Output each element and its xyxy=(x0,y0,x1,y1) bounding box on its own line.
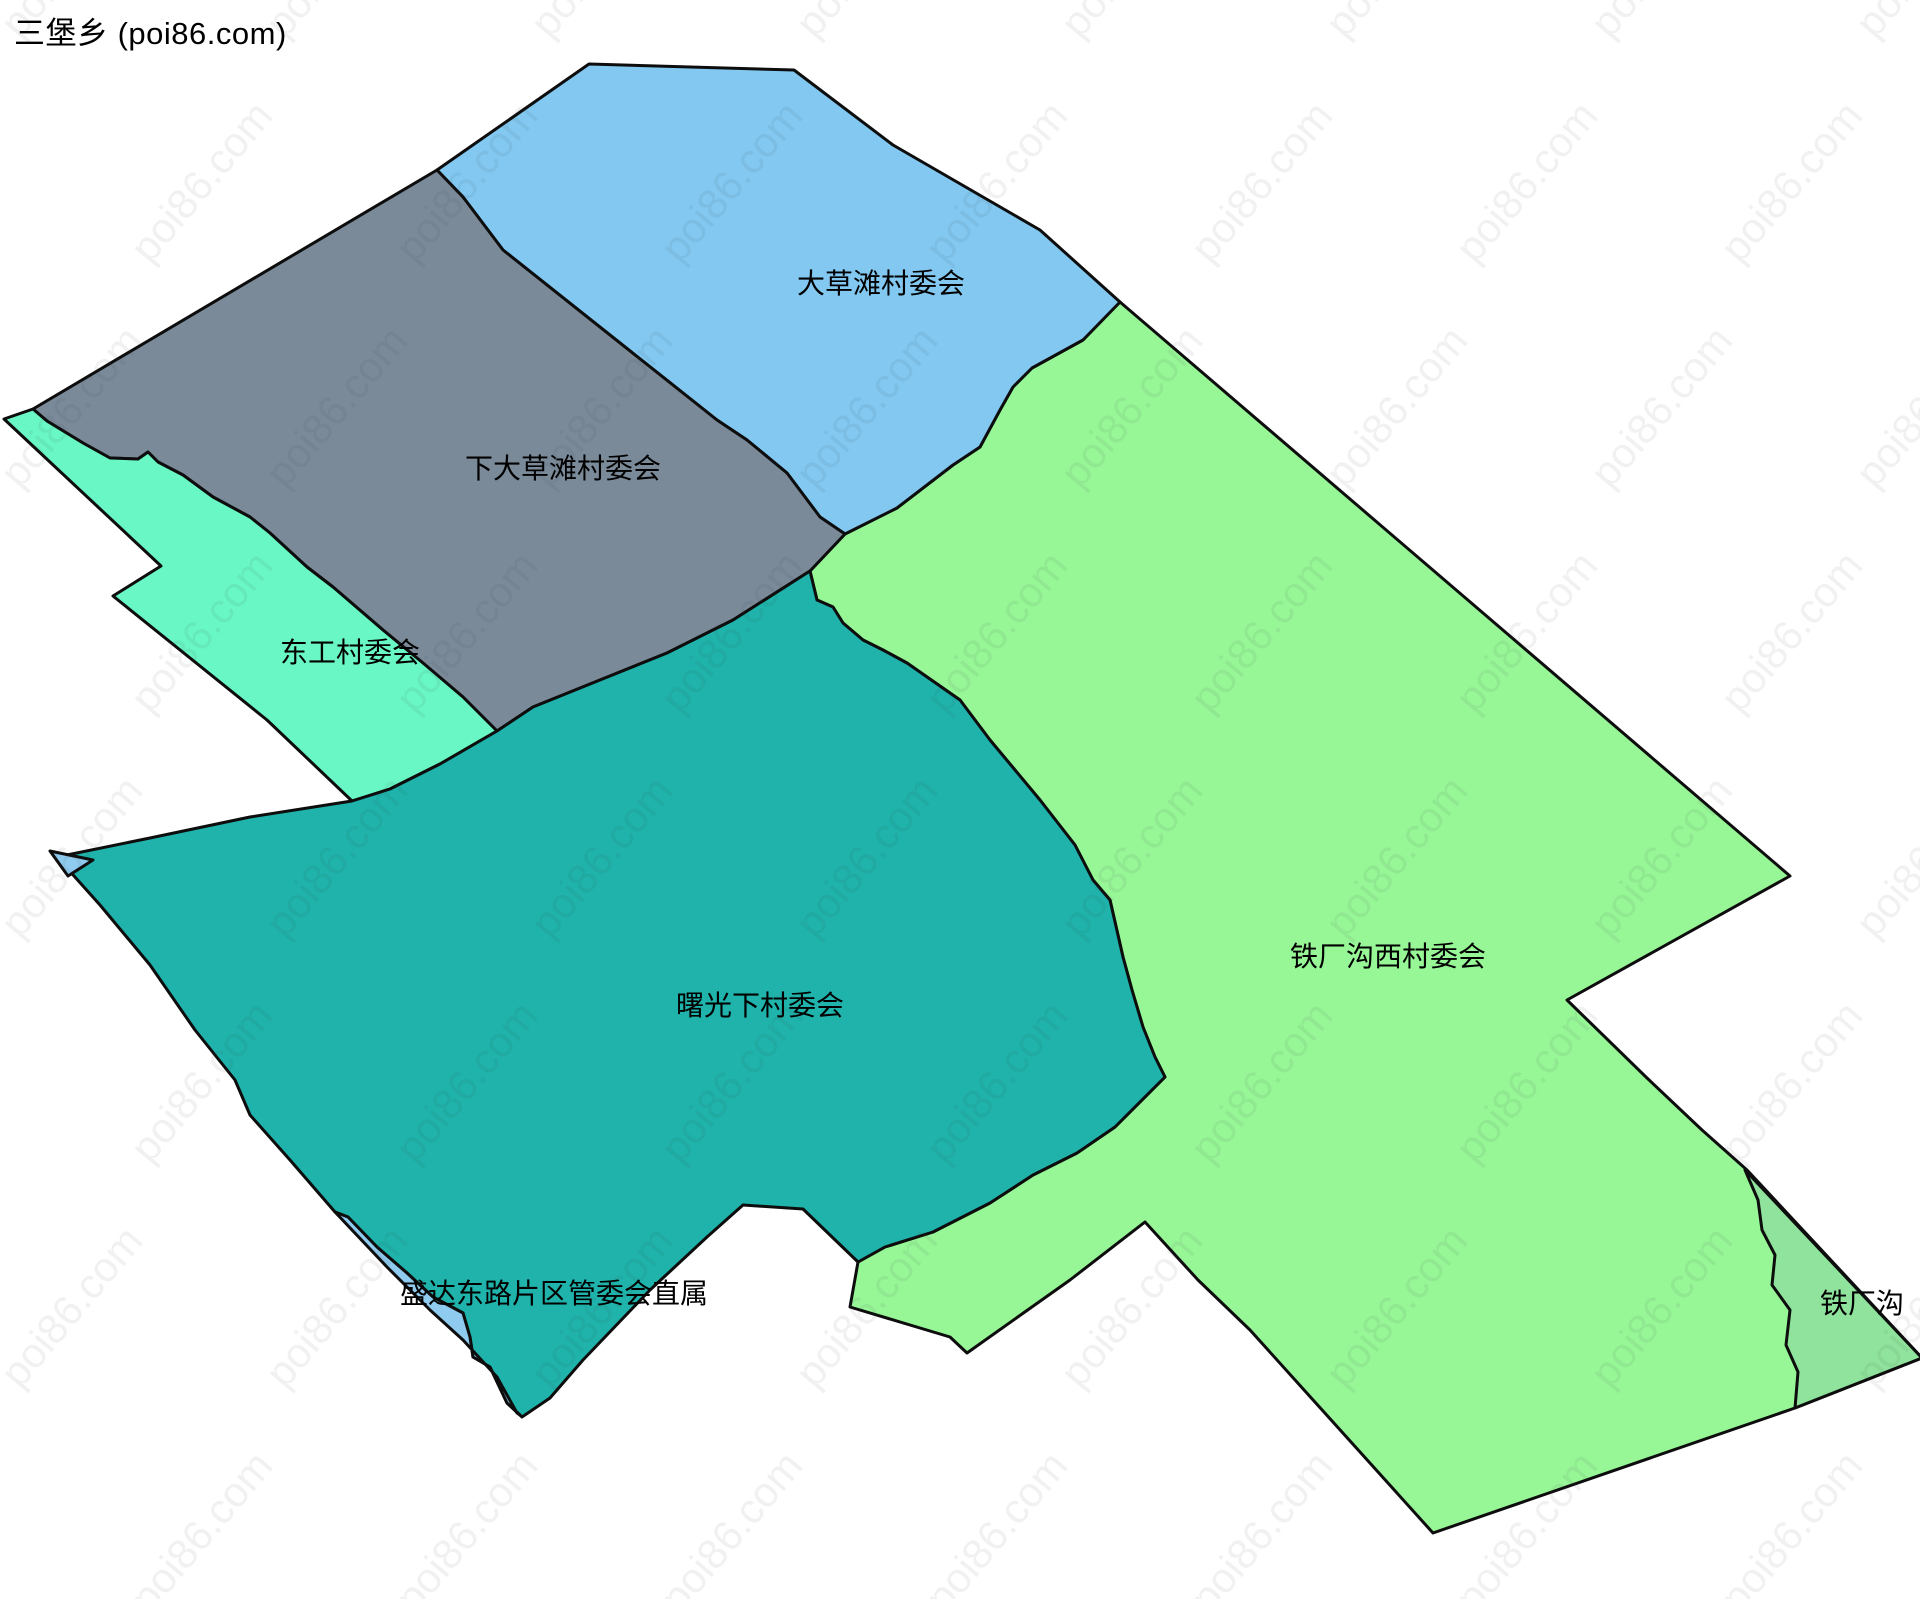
watermark-text: poi86.com xyxy=(1581,317,1742,496)
page-title: 三堡乡 (poi86.com) xyxy=(14,8,287,53)
watermark-text: poi86.com xyxy=(1581,0,1742,46)
region-label-tiechanggouxi: 铁厂沟西村委会 xyxy=(1290,941,1486,972)
watermark-text: poi86.com xyxy=(1711,92,1872,271)
watermark-text: poi86.com xyxy=(1316,317,1477,496)
watermark-text: poi86.com xyxy=(651,1442,812,1599)
watermark-text: poi86.com xyxy=(121,92,282,271)
watermark-text: poi86.com xyxy=(1711,542,1872,721)
region-label-dacaotan: 大草滩村委会 xyxy=(797,268,965,299)
region-label-shengdadonglu: 盛达东路片区管委会直属 xyxy=(400,1278,708,1309)
watermark-text: poi86.com xyxy=(1181,92,1342,271)
watermark-text: poi86.com xyxy=(1051,0,1212,46)
region-label-donggong: 东工村委会 xyxy=(280,637,420,668)
watermark-text: poi86.com xyxy=(916,1442,1077,1599)
map-canvas: 铁厂沟西村委会大草滩村委会下大草滩村委会东工村委会曙光下村委会盛达东路片区管委会… xyxy=(0,0,1920,1599)
watermark-text: poi86.com xyxy=(1316,0,1477,46)
watermark-text: poi86.com xyxy=(1846,0,1920,46)
watermark-text: poi86.com xyxy=(1181,1442,1342,1599)
watermark-text: poi86.com xyxy=(1711,992,1872,1171)
watermark-text: poi86.com xyxy=(1711,1442,1872,1599)
watermark-text: poi86.com xyxy=(0,1217,151,1396)
watermark-text: poi86.com xyxy=(256,1217,417,1396)
watermark-text: poi86.com xyxy=(1846,317,1920,496)
watermark-text: poi86.com xyxy=(521,0,682,46)
watermark-text: poi86.com xyxy=(1846,767,1920,946)
watermark-text: poi86.com xyxy=(1446,92,1607,271)
watermark-text: poi86.com xyxy=(386,1442,547,1599)
map-page: 三堡乡 (poi86.com) 铁厂沟西村委会大草滩村委会下大草滩村委会东工村委… xyxy=(0,0,1920,1599)
watermark-text: poi86.com xyxy=(786,0,947,46)
watermark-text: poi86.com xyxy=(121,1442,282,1599)
